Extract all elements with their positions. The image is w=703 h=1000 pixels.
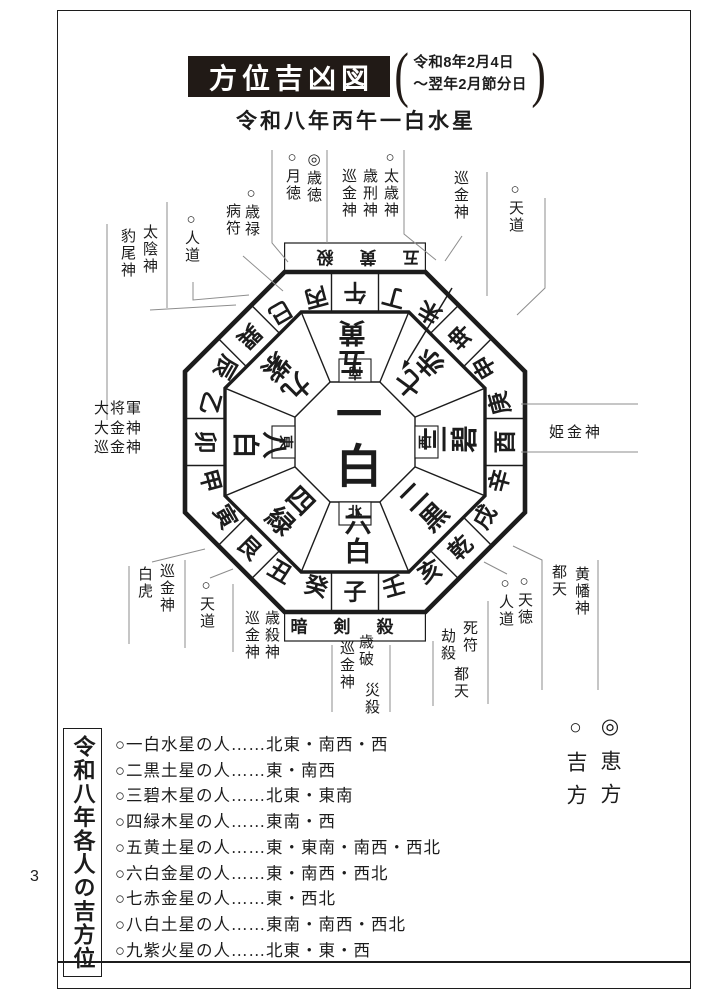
band-goousatsu: 五黄殺	[291, 249, 420, 266]
label-daikonjin: 大金神	[94, 420, 142, 440]
list-item: ○八白土星の人……東南・南西・西北	[115, 911, 406, 935]
legend-kichiho: ○吉方	[565, 716, 586, 817]
label-junkonjin-top-right: 巡金神	[452, 170, 467, 221]
list-item: ○一白水星の人……北東・南西・西	[115, 731, 388, 755]
period-text: 令和8年2月4日 〜翌年2月節分日	[411, 53, 529, 97]
list-item: ○七赤金星の人……東・西北	[115, 885, 336, 909]
label-hyobijin: 豹尾神	[119, 228, 134, 279]
label-tendo-top: ○天道	[507, 182, 522, 234]
label-saitoku: ◎歳徳	[305, 150, 320, 204]
period-line1: 令和8年2月4日	[413, 53, 527, 75]
almanac-page: 方位吉凶図 ( 令和8年2月4日 〜翌年2月節分日 ) 令和八年丙午一白水星	[0, 0, 703, 1000]
legend-eho: ◎恵方	[599, 714, 620, 816]
label-taisaijin: ○太歳神	[382, 150, 397, 219]
label-byakko: 白虎	[136, 566, 151, 600]
label-obanjin: 黄幡神	[573, 566, 588, 617]
label-shifu: 死符	[461, 620, 476, 654]
ring-tori: 酉	[494, 431, 517, 454]
star-west: 三碧	[421, 429, 479, 456]
list-item: ○四緑木星の人……東南・西	[115, 808, 336, 832]
period-line2: 〜翌年2月節分日	[413, 75, 527, 97]
list-item: ○六白金星の人……東・南西・西北	[115, 860, 388, 884]
good-directions-title-box: 令和八年各人の吉方位	[63, 728, 102, 977]
good-directions-title: 令和八年各人の吉方位	[72, 735, 94, 970]
ring-ne: 子	[344, 581, 367, 604]
star-south: 五黄	[342, 318, 369, 376]
list-item: ○九紫火星の人……北東・東・西	[115, 937, 371, 961]
list-item: ○二黒土星の人……東・南西	[115, 757, 336, 781]
title-box: 方位吉凶図	[188, 56, 390, 97]
label-tentoku: ○天徳	[516, 574, 531, 626]
label-himekonjin: 姫金神	[549, 424, 603, 444]
label-saikeijin: 歳刑神	[361, 168, 376, 219]
label-saisetsujin: 歳殺神	[263, 610, 278, 661]
star-east: 八白	[231, 429, 289, 456]
label-jindo-se: ○人道	[497, 576, 512, 628]
year-star-heading: 令和八年丙午一白水星	[156, 105, 556, 135]
close-paren: )	[531, 49, 545, 101]
label-junkonjin-sw: 巡金神	[158, 563, 173, 614]
label-saisatsu: 災殺	[363, 682, 378, 716]
label-junkonjin-east: 巡金神	[94, 439, 142, 459]
label-daishogun: 大将軍	[94, 400, 142, 420]
label-jindo-nw: ○人道	[183, 212, 198, 264]
page-number: 3	[30, 868, 39, 886]
label-junkonjin-north: 巡金神	[338, 640, 353, 691]
label-kosatsu: 劫殺	[439, 628, 454, 662]
label-toten-outer: 都天	[550, 564, 565, 598]
list-item: ○三碧木星の人……北東・東南	[115, 782, 353, 806]
label-toten-inner: 都天	[452, 666, 467, 700]
center-star: 一白	[332, 390, 378, 494]
label-daishogun-group: 大将軍 大金神 巡金神	[94, 400, 142, 459]
open-paren: (	[394, 49, 408, 101]
ring-u: 卯	[194, 431, 217, 454]
label-sairoku: ○歳禄	[243, 186, 258, 238]
page-title: 方位吉凶図	[204, 57, 374, 97]
ring-uma: 午	[344, 281, 367, 304]
period-note: ( 令和8年2月4日 〜翌年2月節分日 )	[392, 50, 548, 99]
label-byofu: 病符	[224, 203, 239, 237]
list-item: ○五黄土星の人……東・東南・南西・西北	[115, 834, 441, 858]
bottom-rule	[57, 961, 690, 963]
star-north: 六白	[342, 508, 369, 566]
label-gettoku: ○月徳	[284, 150, 299, 202]
label-saiha: 歳破	[357, 634, 372, 668]
label-junkonjin-ushi: 巡金神	[243, 610, 258, 661]
band-ankensatsu: 暗剣殺	[291, 619, 420, 636]
label-taionjin: 太陰神	[141, 224, 156, 275]
label-junkonjin-taisai: 巡金神	[340, 168, 355, 219]
label-tendo-bottom: ○天道	[198, 578, 213, 630]
